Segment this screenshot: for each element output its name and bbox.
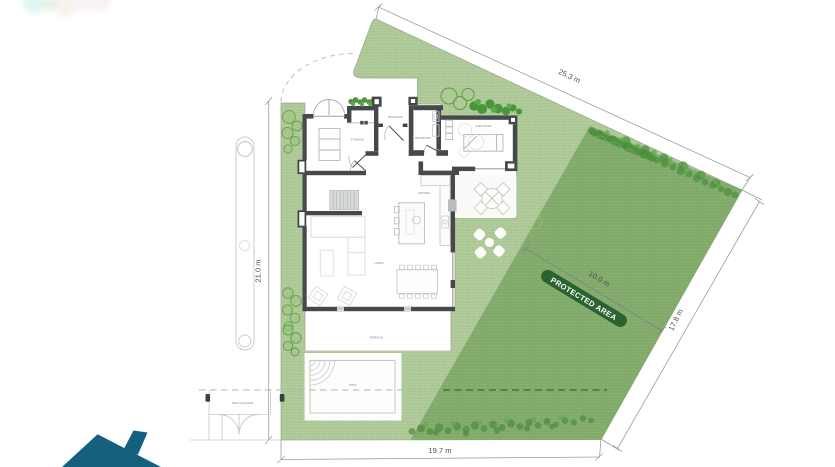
svg-text:BEACH ACCESS: BEACH ACCESS (233, 401, 254, 405)
svg-text:TERRACE: TERRACE (369, 336, 382, 340)
svg-text:ENTRANCE: ENTRANCE (388, 115, 403, 119)
svg-text:POOL: POOL (349, 383, 357, 387)
svg-text:STORAGE: STORAGE (350, 138, 363, 142)
svg-text:19.7 m: 19.7 m (428, 446, 451, 455)
svg-text:FLEX ROOM: FLEX ROOM (476, 124, 493, 128)
svg-text:21.0 m: 21.0 m (254, 259, 263, 282)
svg-text:KITCHEN: KITCHEN (418, 191, 430, 195)
svg-text:BATHROOM: BATHROOM (415, 136, 431, 140)
svg-text:LIVING: LIVING (374, 261, 383, 265)
